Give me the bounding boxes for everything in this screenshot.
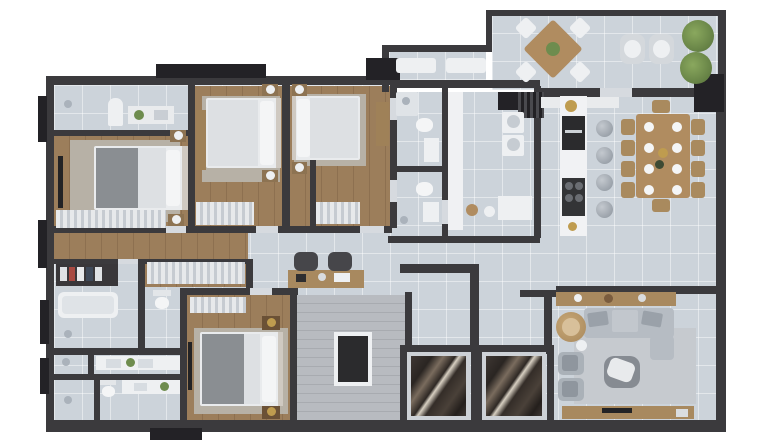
kitchen-oven-handle xyxy=(565,130,582,133)
vanitybath-sink-1 xyxy=(106,359,121,368)
bedroom3-headboard xyxy=(292,96,296,160)
dining-centerpiece-gold xyxy=(658,148,668,158)
wall-bath-hall-south xyxy=(388,236,540,243)
living-tv xyxy=(602,408,632,413)
laundry-counter xyxy=(448,92,463,230)
balcony-bench-1 xyxy=(396,58,436,73)
door-gap-bedroom1 xyxy=(166,226,186,233)
master-wardrobe xyxy=(190,297,246,313)
window-block-left-3 xyxy=(40,300,49,344)
dining-plate-6 xyxy=(672,143,682,153)
terrace-lounge-chair-1-cushion xyxy=(624,40,641,58)
dining-chair-left-2 xyxy=(621,140,635,156)
kitchen-stool-3 xyxy=(596,174,613,191)
laundry-washer-door xyxy=(507,115,520,128)
laundry-dark-cabinet xyxy=(498,92,518,110)
dining-plate-4 xyxy=(644,185,654,195)
dining-centerpiece-plant xyxy=(655,160,664,169)
bedroom3-wardrobe xyxy=(316,202,360,224)
bath4-sink xyxy=(134,383,147,391)
closet-cloth-5 xyxy=(95,267,102,281)
master-pillows xyxy=(262,336,276,402)
wall-balcony-top xyxy=(382,45,492,52)
dining-plate-1 xyxy=(644,122,654,132)
wall-elevators-mid xyxy=(471,345,482,423)
kitchen-gold-dish xyxy=(568,222,577,231)
wall-bedroom1-bedroom2 xyxy=(188,84,195,228)
elevator1-floor xyxy=(411,356,466,416)
bath4-vanity xyxy=(122,380,180,394)
roomC-mirror-door xyxy=(108,98,123,126)
wall-masterbath-closet xyxy=(138,259,145,349)
door-gap-master xyxy=(250,288,272,295)
kitchen-oven xyxy=(562,116,585,150)
living-sofa-chaise xyxy=(650,336,674,360)
wall-terrace-left xyxy=(486,10,492,52)
bedroom2-lamp-bottom xyxy=(266,171,275,180)
office-desk-item-1 xyxy=(296,274,306,282)
bedroom2-headboard xyxy=(276,98,281,168)
wall-outer-bottom xyxy=(46,420,726,432)
wall-roomC-bottom xyxy=(48,130,190,136)
terrace-table-plant xyxy=(546,42,560,56)
laundry-dryer-door xyxy=(507,138,520,151)
wall-foyer-h xyxy=(400,264,470,273)
laundry-basket xyxy=(466,204,478,216)
living-console-decor-2 xyxy=(604,294,613,303)
bedroom3-blanket xyxy=(310,98,358,158)
bedroom1-pillows xyxy=(166,150,180,206)
dining-chair-right-1 xyxy=(691,119,705,135)
door-gap-bedroom2 xyxy=(256,226,278,233)
dining-chair-bottom xyxy=(652,199,670,212)
dining-chair-top xyxy=(652,100,670,113)
bath4-plant xyxy=(160,382,169,391)
bedroom1-wardrobe xyxy=(56,210,166,228)
vanitybath-shower-drain xyxy=(62,358,70,366)
roomC-decor xyxy=(154,110,168,120)
living-sofa-cushion-1 xyxy=(587,311,609,328)
terrace-plant-2 xyxy=(680,52,712,84)
closet-cloth-4 xyxy=(86,267,93,281)
laundry-table xyxy=(498,196,532,220)
dining-chair-right-2 xyxy=(691,140,705,156)
office-chair-2 xyxy=(328,252,352,271)
kitchen-stool-1 xyxy=(596,120,613,137)
bathB-toilet xyxy=(416,182,433,196)
elevator2-floor xyxy=(486,356,542,416)
masterwc-toilet-tank xyxy=(153,290,171,296)
bathA-shower-drain xyxy=(402,97,410,105)
bedroom3-pillows xyxy=(297,99,310,157)
kitchen-burner-1 xyxy=(565,182,573,190)
wall-elevators-left xyxy=(400,345,407,423)
bedroom2-lamp-top xyxy=(266,85,275,94)
dining-plate-8 xyxy=(672,185,682,195)
bathB-shower-drain xyxy=(400,216,408,224)
bedroom1-lamp-bottom xyxy=(172,215,181,224)
living-console-decor-1 xyxy=(574,294,582,302)
living-side-table xyxy=(576,340,587,351)
dining-chair-right-3 xyxy=(691,161,705,177)
window-block-bottom xyxy=(150,428,202,440)
door-gap-bedroom3 xyxy=(360,226,384,233)
kitchen-burner-3 xyxy=(565,194,573,202)
wall-stair-left xyxy=(290,288,297,420)
bedroom1-headboard xyxy=(182,146,188,210)
dining-plate-5 xyxy=(672,122,682,132)
bedroom3-lamp-bottom xyxy=(295,163,304,172)
laundry-sink xyxy=(484,206,495,217)
office-desk-item-2 xyxy=(318,273,326,281)
door-gap-terrace xyxy=(600,88,632,97)
vanitybath-plant xyxy=(126,358,135,367)
terrace-lounge-chair-2-cushion xyxy=(653,40,670,58)
bath4-toilet-tank xyxy=(100,380,116,385)
bedroom3-lamp-top xyxy=(295,85,304,94)
master-blanket-white xyxy=(244,334,260,404)
window-block-left-2 xyxy=(38,220,47,268)
window-block-top-1 xyxy=(156,64,266,78)
kitchen-stool-4 xyxy=(596,201,613,218)
masterbath-tub-inner xyxy=(62,296,114,314)
bath4-toilet-bowl xyxy=(102,386,115,397)
bedroom2-pillows xyxy=(260,101,274,165)
dining-chair-left-1 xyxy=(621,119,635,135)
kitchen-burner-2 xyxy=(575,182,583,190)
kitchen-burner-4 xyxy=(575,194,583,202)
bathA-vanity xyxy=(424,138,439,162)
master-blanket-gray xyxy=(202,334,244,404)
dining-chair-left-3 xyxy=(621,161,635,177)
wall-bath-v1 xyxy=(88,352,94,376)
bedroom1-blanket-white xyxy=(138,148,166,208)
closet-cloth-1 xyxy=(60,267,67,281)
vanitybath-sink-2 xyxy=(138,359,153,368)
dining-plate-2 xyxy=(644,143,654,153)
wall-master-left xyxy=(180,292,187,420)
master-tv-panel xyxy=(188,342,192,390)
closet-cloth-3 xyxy=(77,267,84,281)
wall-master-top xyxy=(180,288,298,295)
closet-cloth-2 xyxy=(69,267,75,281)
balcony-bench-2 xyxy=(446,58,486,73)
wall-suite-h1 xyxy=(46,348,186,355)
window-block-left-4 xyxy=(40,358,49,394)
stair-void xyxy=(338,336,368,382)
kitchen-stool-2 xyxy=(596,147,613,164)
office-chair-1 xyxy=(294,252,318,271)
wall-bath-v2 xyxy=(94,380,100,420)
bedroom3-desk xyxy=(376,102,389,146)
door-gap-bathB xyxy=(390,180,397,202)
masterwc-toilet-bowl xyxy=(155,297,169,309)
master-headboard xyxy=(278,332,283,406)
door-gap-suite xyxy=(118,259,138,264)
wall-bathrooms-top xyxy=(390,80,540,88)
closet-white-wardrobe xyxy=(147,262,245,284)
bedroom1-lamp-top xyxy=(174,131,183,140)
master-lamp-bottom xyxy=(267,407,276,416)
master-lamp-top xyxy=(267,318,276,327)
bathB-vanity xyxy=(423,202,439,222)
dining-chair-left-4 xyxy=(621,182,635,198)
living-tv-decor xyxy=(676,409,688,417)
bath4-shower-drain xyxy=(64,396,72,404)
dining-plate-3 xyxy=(644,164,654,174)
terrace-plant-1 xyxy=(682,20,714,52)
bedroom2-tv-panel xyxy=(196,110,206,170)
roomC-shower-drain xyxy=(64,100,72,108)
roomC-plant xyxy=(134,110,144,120)
wall-foyer-v xyxy=(470,264,479,352)
living-armchair-2-cushion xyxy=(562,381,578,397)
bedroom2-blanket xyxy=(208,100,258,166)
window-block-top-2 xyxy=(366,58,400,80)
bathA-toilet xyxy=(416,118,433,132)
floorplan-canvas xyxy=(0,0,768,448)
masterbath-shower-drain xyxy=(64,330,72,338)
wall-bedroom2-bedroom3 xyxy=(282,84,290,228)
dining-chair-right-4 xyxy=(691,182,705,198)
corridor-floor xyxy=(54,233,248,259)
living-rattan-cushion xyxy=(562,318,580,336)
office-desk-item-3 xyxy=(334,273,350,282)
bedroom2-wardrobe xyxy=(196,202,254,225)
wall-elevators-right xyxy=(547,345,554,423)
bedroom1-tv-panel xyxy=(58,156,63,208)
living-armchair-1-cushion xyxy=(562,355,578,371)
wall-outer-right xyxy=(716,92,726,432)
living-console-decor-3 xyxy=(638,294,646,302)
dining-plate-7 xyxy=(672,164,682,174)
wall-stair-right xyxy=(405,292,412,350)
living-sofa-cushion-2 xyxy=(612,310,638,332)
wall-terrace-top xyxy=(486,10,726,16)
wall-closet-office xyxy=(246,259,253,289)
window-block-left-1 xyxy=(38,96,47,142)
wall-bathA-bathB xyxy=(392,166,444,172)
bedroom1-blanket-gray xyxy=(96,148,138,208)
kitchen-sink-gold xyxy=(565,100,577,112)
